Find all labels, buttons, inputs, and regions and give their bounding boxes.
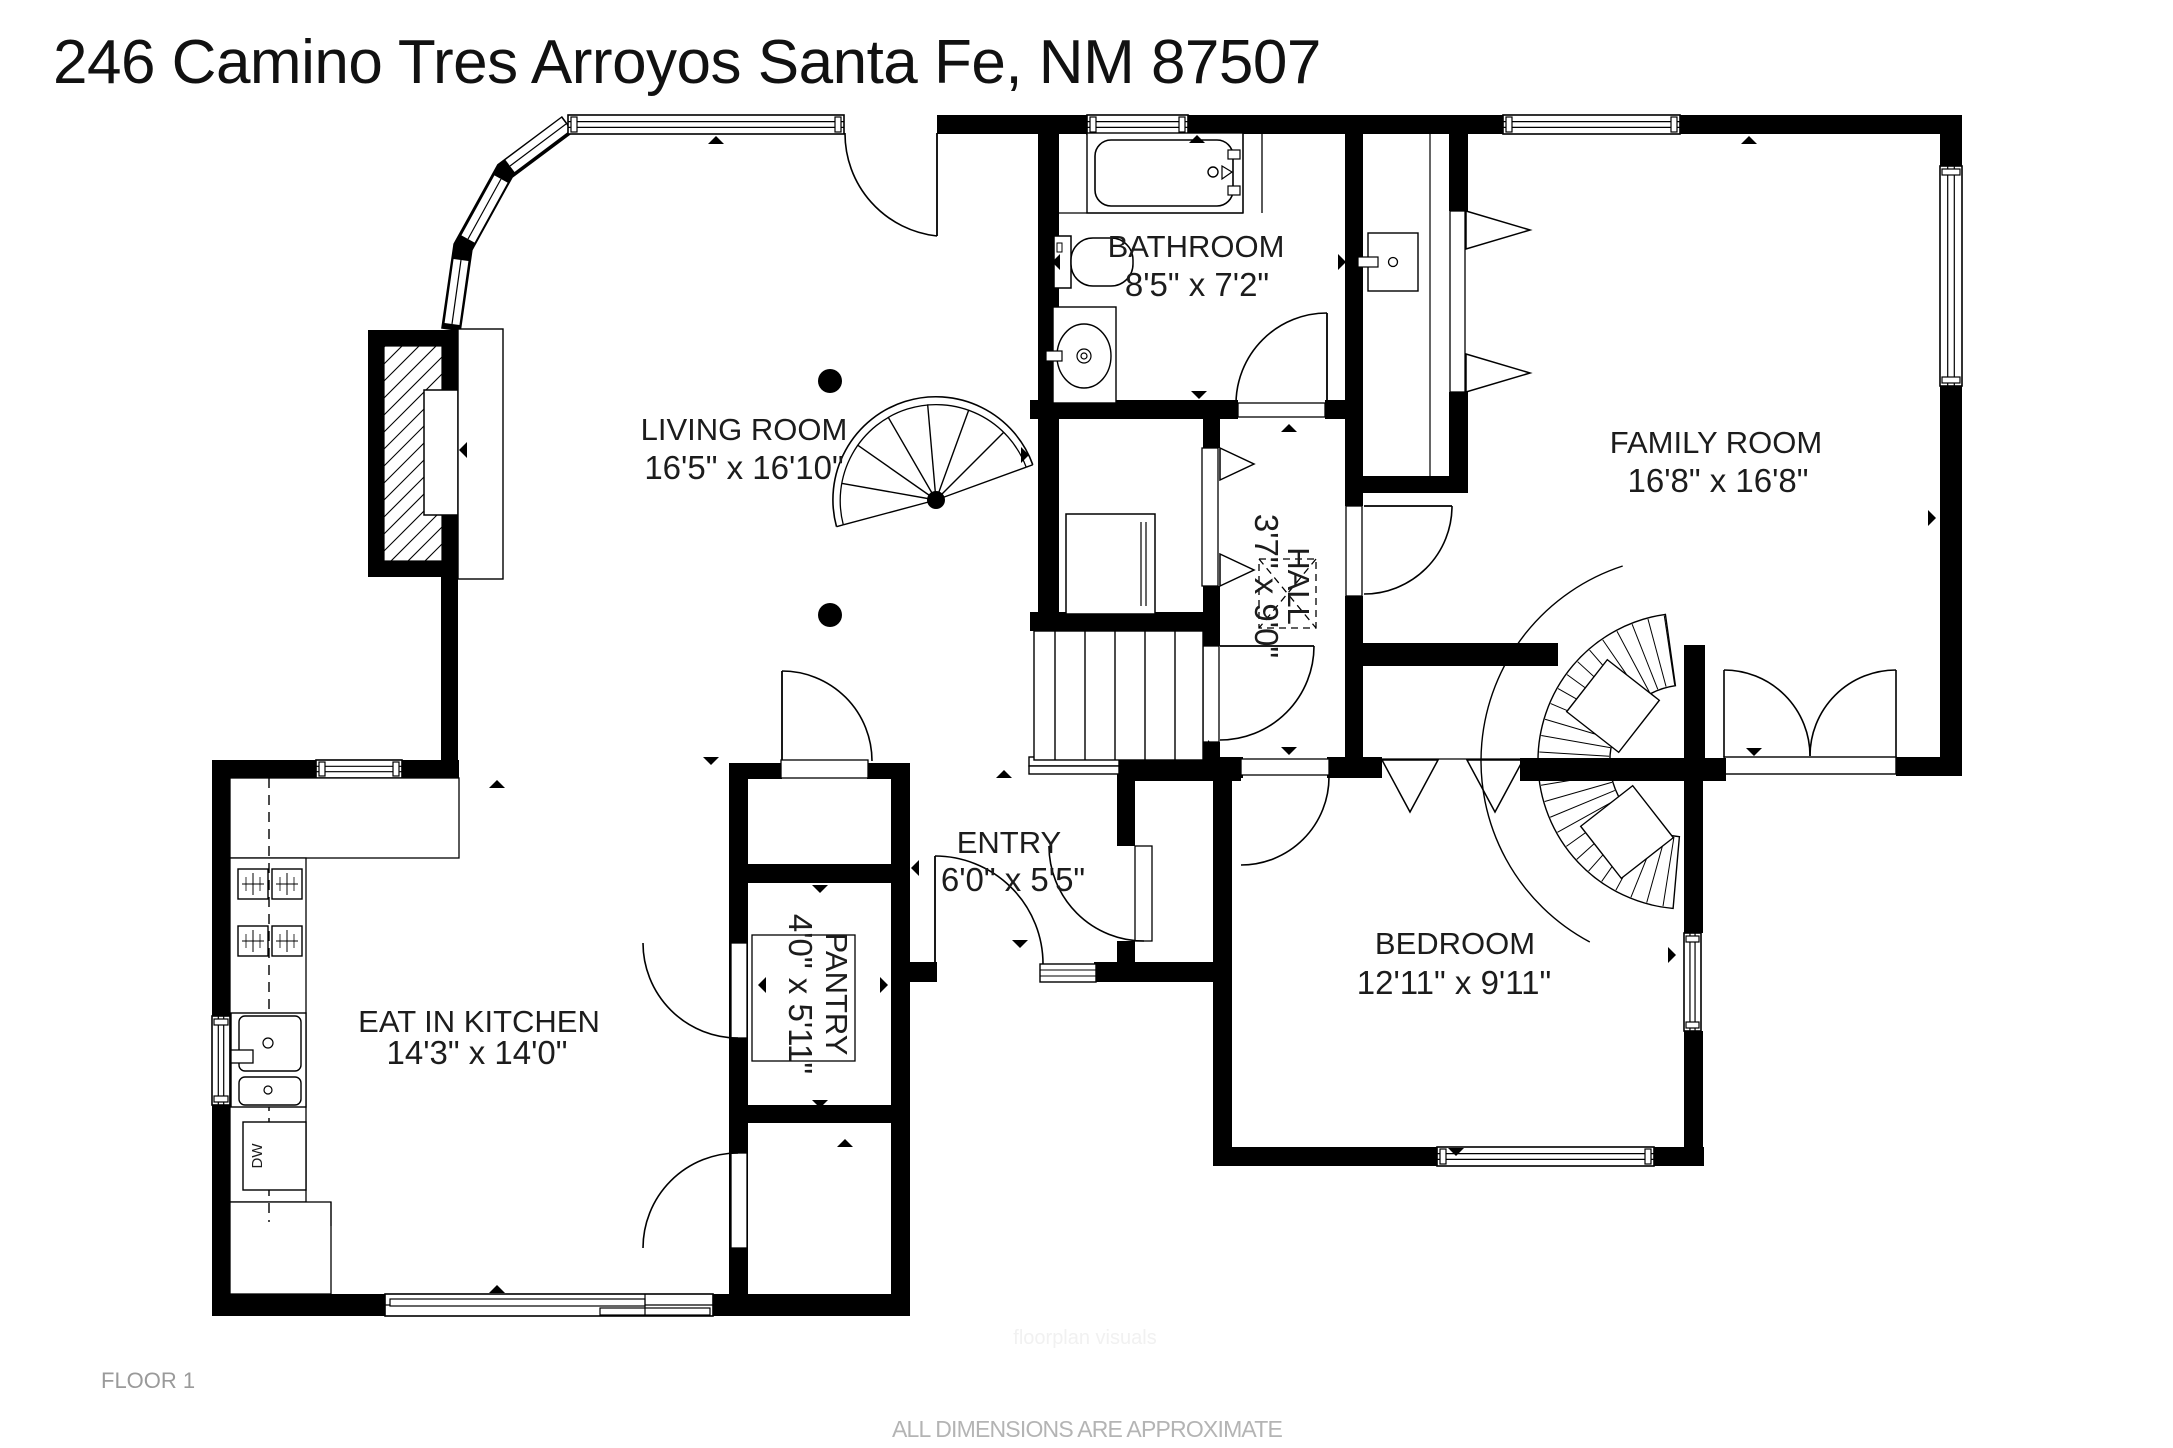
svg-text:6'0" x 5'5": 6'0" x 5'5" <box>941 861 1085 898</box>
svg-text:16'8" x 16'8": 16'8" x 16'8" <box>1628 462 1809 499</box>
svg-text:ENTRY: ENTRY <box>957 825 1062 860</box>
svg-text:BATHROOM: BATHROOM <box>1108 229 1285 264</box>
svg-text:8'5" x 7'2": 8'5" x 7'2" <box>1125 266 1269 303</box>
svg-text:246 Camino Tres Arroyos Santa: 246 Camino Tres Arroyos Santa Fe, NM 875… <box>53 28 1321 97</box>
svg-text:FAMILY ROOM: FAMILY ROOM <box>1610 425 1822 460</box>
svg-text:3'7" x 9'0": 3'7" x 9'0" <box>1248 514 1285 658</box>
svg-text:DW: DW <box>249 1143 266 1169</box>
svg-text:BEDROOM: BEDROOM <box>1375 926 1535 961</box>
svg-text:LIVING ROOM: LIVING ROOM <box>641 412 848 447</box>
svg-text:12'11" x 9'11": 12'11" x 9'11" <box>1357 964 1551 1001</box>
svg-text:HALL: HALL <box>1281 547 1316 625</box>
svg-text:16'5" x 16'10": 16'5" x 16'10" <box>644 449 843 486</box>
svg-text:14'3" x 14'0": 14'3" x 14'0" <box>387 1034 568 1071</box>
svg-text:ALL DIMENSIONS ARE APPROXIMATE: ALL DIMENSIONS ARE APPROXIMATE <box>892 1416 1283 1442</box>
svg-text:4'0" x 5'11": 4'0" x 5'11" <box>782 914 819 1074</box>
svg-text:FLOOR 1: FLOOR 1 <box>101 1368 195 1393</box>
svg-text:PANTRY: PANTRY <box>819 933 854 1056</box>
svg-text:floorplan visuals: floorplan visuals <box>1013 1327 1156 1349</box>
